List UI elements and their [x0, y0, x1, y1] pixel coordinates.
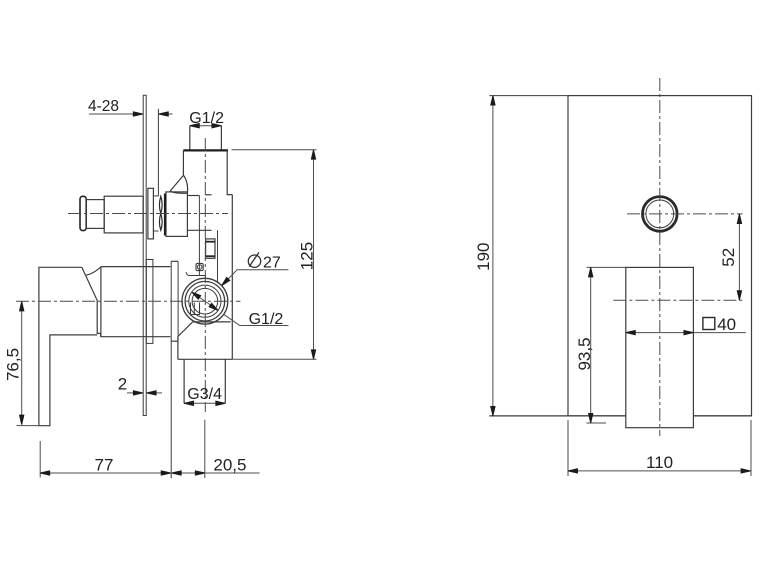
svg-text:G1/2: G1/2	[189, 110, 224, 127]
svg-text:G1/2: G1/2	[249, 311, 284, 328]
svg-text:52: 52	[719, 248, 738, 267]
svg-text:20,5: 20,5	[213, 455, 246, 474]
svg-text:125: 125	[298, 242, 317, 270]
svg-text:40: 40	[717, 315, 736, 334]
svg-text:190: 190	[474, 243, 493, 271]
svg-text:76,5: 76,5	[3, 348, 22, 381]
svg-text:2: 2	[118, 375, 127, 394]
svg-text:G3/4: G3/4	[187, 386, 222, 403]
svg-text:93,5: 93,5	[575, 337, 594, 370]
svg-text:4-28: 4-28	[88, 98, 119, 115]
svg-text:110: 110	[646, 453, 673, 472]
svg-text:27: 27	[263, 254, 281, 271]
svg-text:77: 77	[95, 455, 114, 474]
